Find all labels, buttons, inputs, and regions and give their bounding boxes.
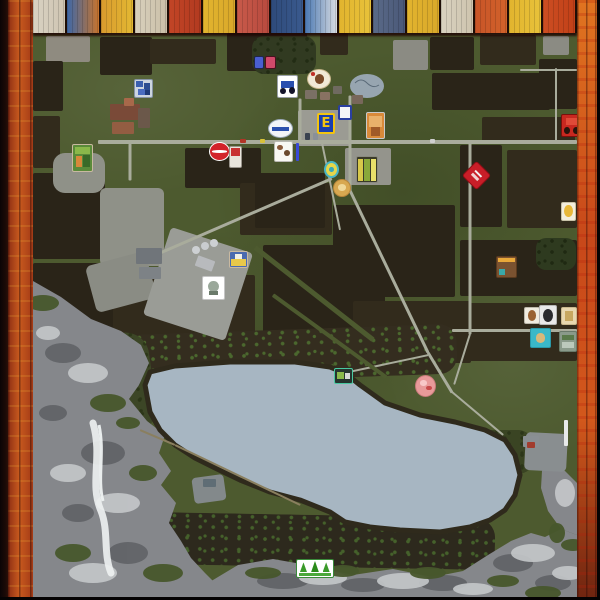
icon-detail xyxy=(536,333,546,342)
world-map[interactable]: E xyxy=(33,33,577,600)
field-patch xyxy=(33,61,63,111)
icon-detail xyxy=(498,258,515,262)
silo-icon[interactable] xyxy=(201,242,209,250)
building xyxy=(296,143,299,161)
icon-letter: E xyxy=(319,115,333,132)
forest-patch xyxy=(428,430,534,474)
icon-detail xyxy=(337,372,344,379)
building xyxy=(124,98,134,106)
building xyxy=(138,108,150,128)
icon-detail xyxy=(231,148,240,156)
waterfall xyxy=(93,423,111,573)
road xyxy=(98,140,577,144)
icon-detail xyxy=(284,150,290,156)
mill-sign-icon[interactable] xyxy=(229,251,248,268)
building xyxy=(320,92,330,100)
camo-sign-icon[interactable] xyxy=(134,79,153,98)
icon-detail xyxy=(311,72,315,76)
icon-detail xyxy=(338,184,347,191)
icon-detail xyxy=(371,127,380,136)
frame-plank xyxy=(101,0,135,33)
icon-detail xyxy=(562,335,574,340)
field-patch xyxy=(100,37,152,75)
icon-detail xyxy=(289,87,295,94)
icon-detail xyxy=(235,254,242,259)
road xyxy=(555,68,557,142)
cow-sign-icon[interactable] xyxy=(274,141,293,162)
icon-detail xyxy=(345,373,349,379)
pie-roundel-icon[interactable] xyxy=(324,161,339,178)
icon-detail xyxy=(562,342,574,348)
garden-sign-icon[interactable] xyxy=(72,144,93,172)
icon-detail xyxy=(212,150,227,152)
boat-sign-icon[interactable] xyxy=(334,368,353,384)
animal-roundel-icon[interactable] xyxy=(307,69,331,89)
crops-sign-icon[interactable] xyxy=(356,156,378,183)
icon-detail xyxy=(364,159,369,181)
icon-detail xyxy=(315,74,325,84)
icon-detail xyxy=(420,380,426,386)
field-patch xyxy=(320,33,348,55)
silo-icon[interactable] xyxy=(192,246,200,254)
icon-detail xyxy=(329,167,334,172)
screenshot-stage: E xyxy=(0,0,600,600)
building xyxy=(305,90,317,99)
icon-detail xyxy=(543,309,554,323)
icon-detail xyxy=(209,291,217,296)
frame-plank xyxy=(203,0,237,33)
frame-plank xyxy=(305,0,339,33)
icon-detail xyxy=(83,155,90,167)
building xyxy=(333,86,342,94)
pig-roundel-icon[interactable] xyxy=(415,375,436,397)
icon-detail xyxy=(145,90,150,95)
frame-plank xyxy=(271,0,305,33)
silo-icon[interactable] xyxy=(210,239,218,247)
field-patch xyxy=(480,35,536,65)
icon-detail xyxy=(564,127,570,134)
icon-detail xyxy=(280,88,286,94)
building xyxy=(136,248,162,264)
frame-plank xyxy=(509,0,543,33)
oval-logo-icon[interactable] xyxy=(268,119,293,138)
frame-plank xyxy=(33,0,67,33)
wood-frame-top xyxy=(33,0,577,33)
greenhouse-sign-icon[interactable] xyxy=(559,331,577,352)
icon-detail xyxy=(311,561,319,572)
building xyxy=(430,139,435,143)
icon-detail xyxy=(136,81,142,87)
icon-detail xyxy=(272,127,289,131)
icon-detail xyxy=(564,205,573,217)
butterfly-icon[interactable] xyxy=(561,202,576,221)
icon-detail xyxy=(566,118,577,125)
icon-detail xyxy=(323,562,330,572)
white-blue-sign-icon[interactable] xyxy=(338,105,352,120)
frame-plank xyxy=(339,0,373,33)
icon-detail xyxy=(76,156,83,167)
field-patch xyxy=(46,36,90,62)
field-patch xyxy=(393,40,428,70)
wood-frame-right xyxy=(577,0,597,600)
red-machine-icon[interactable] xyxy=(265,56,276,69)
coin-roundel-icon[interactable] xyxy=(333,179,351,197)
building xyxy=(112,122,134,134)
road xyxy=(299,98,302,142)
icon-detail xyxy=(75,147,91,154)
icon-detail xyxy=(358,159,363,181)
frame-plank xyxy=(67,0,101,33)
tractor-dealer-icon[interactable] xyxy=(277,75,298,98)
edeka-sign-icon[interactable]: E xyxy=(317,113,335,134)
building xyxy=(305,133,310,140)
building xyxy=(527,442,535,448)
building xyxy=(564,420,568,446)
frame-plank xyxy=(475,0,509,33)
building xyxy=(110,104,140,120)
frame-plank xyxy=(407,0,441,33)
cola-roundel-icon[interactable] xyxy=(209,142,230,161)
blue-machine-icon[interactable] xyxy=(254,56,264,69)
icon-detail xyxy=(300,562,307,572)
frame-plank xyxy=(441,0,475,33)
icon-detail xyxy=(231,259,245,266)
barrel-sign-icon[interactable] xyxy=(524,307,540,324)
field-patch xyxy=(150,39,216,64)
feed-sign-icon[interactable] xyxy=(229,146,242,168)
wheat-sign-icon[interactable] xyxy=(561,307,577,325)
icon-detail xyxy=(371,159,376,181)
building xyxy=(139,267,161,279)
frame-plank xyxy=(169,0,203,33)
building xyxy=(260,139,265,143)
field-patch xyxy=(460,145,502,227)
road xyxy=(140,429,176,446)
field-patch xyxy=(255,173,325,228)
frame-plank xyxy=(135,0,169,33)
cyan-sign-icon[interactable] xyxy=(530,328,551,348)
forest-sign-icon[interactable] xyxy=(296,559,334,578)
field-patch xyxy=(430,37,474,70)
gorilla-sign-icon[interactable] xyxy=(539,305,557,325)
building xyxy=(203,479,216,487)
icon-detail xyxy=(565,311,572,321)
icon-detail xyxy=(528,310,537,321)
field-patch xyxy=(432,73,550,110)
building xyxy=(240,139,246,143)
silo-tank-icon[interactable] xyxy=(202,276,225,300)
wood-frame-left xyxy=(8,0,33,600)
icon-detail xyxy=(277,145,282,150)
road xyxy=(129,143,132,180)
field-patch xyxy=(543,36,569,55)
road xyxy=(520,69,577,71)
icon-detail xyxy=(138,89,145,95)
frame-plank xyxy=(237,0,271,33)
icon-detail xyxy=(299,573,331,575)
icon-detail xyxy=(369,116,381,128)
frame-plank xyxy=(373,0,407,33)
painting-sign-icon[interactable] xyxy=(366,112,385,139)
icon-detail xyxy=(426,386,431,391)
frame-plank xyxy=(543,0,577,33)
building xyxy=(352,95,363,104)
building xyxy=(313,133,318,140)
forest-patch xyxy=(536,238,576,270)
red-tractor-icon[interactable] xyxy=(561,114,577,137)
icon-detail xyxy=(499,269,505,276)
crate-sign-icon[interactable] xyxy=(496,256,517,278)
